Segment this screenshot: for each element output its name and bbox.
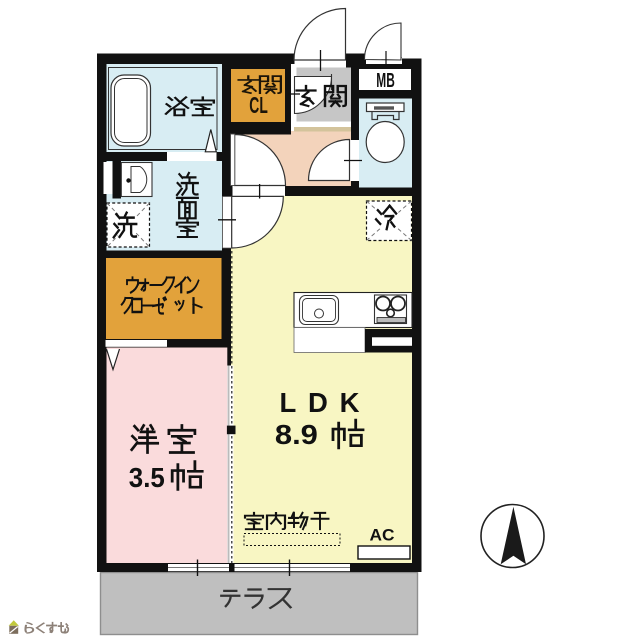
svg-text:3.5: 3.5 <box>129 462 165 493</box>
svg-text:MB: MB <box>376 70 395 92</box>
svg-text:AC: AC <box>370 526 395 545</box>
svg-text:CL: CL <box>249 92 267 118</box>
svg-text:LDK: LDK <box>280 387 360 418</box>
svg-text:8.9: 8.9 <box>275 419 318 450</box>
